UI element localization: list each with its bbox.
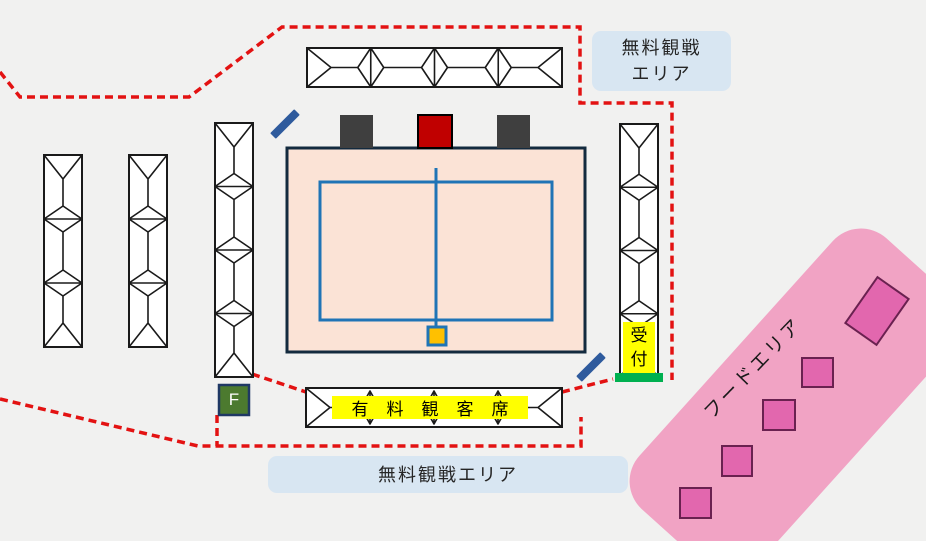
free-viewing-area-label-bottom-text: 無料観戦エリア xyxy=(378,462,518,488)
entrance-mark-2 xyxy=(576,352,606,382)
food-stall-2 xyxy=(722,446,752,476)
venue-map: 無料観戦 エリア 無料観戦エリア フードエリア 有料観客席 受付 F xyxy=(0,0,926,541)
paid-seating-banner-text: 有料観客席 xyxy=(332,396,528,419)
reception-label-text: 受付 xyxy=(623,322,655,373)
free-area-boundary-bottom-2 xyxy=(252,374,306,392)
tent-left-3 xyxy=(215,123,253,377)
free-viewing-area-label-bottom: 無料観戦エリア xyxy=(268,456,628,493)
facility-f-mark-text: F xyxy=(219,385,249,415)
free-area-boundary-bottom-3 xyxy=(562,379,613,392)
free-viewing-area-label-top-line2: エリア xyxy=(632,61,692,87)
tent-left-1 xyxy=(44,155,82,347)
food-stall-3 xyxy=(763,400,795,430)
tent-left-2 xyxy=(129,155,167,347)
entrance-mark-1 xyxy=(270,109,300,139)
bench-gray-1 xyxy=(340,115,373,148)
food-stall-4 xyxy=(802,358,833,387)
bench-gray-3 xyxy=(497,115,530,148)
bench-red-2 xyxy=(418,115,452,148)
tent-top xyxy=(307,48,562,87)
food-stall-1 xyxy=(680,488,711,518)
free-viewing-area-label-top: 無料観戦 エリア xyxy=(592,31,731,91)
reception-base-bar xyxy=(615,373,663,382)
referee-stand-marker xyxy=(428,327,446,345)
free-viewing-area-label-top-line1: 無料観戦 xyxy=(622,35,702,61)
